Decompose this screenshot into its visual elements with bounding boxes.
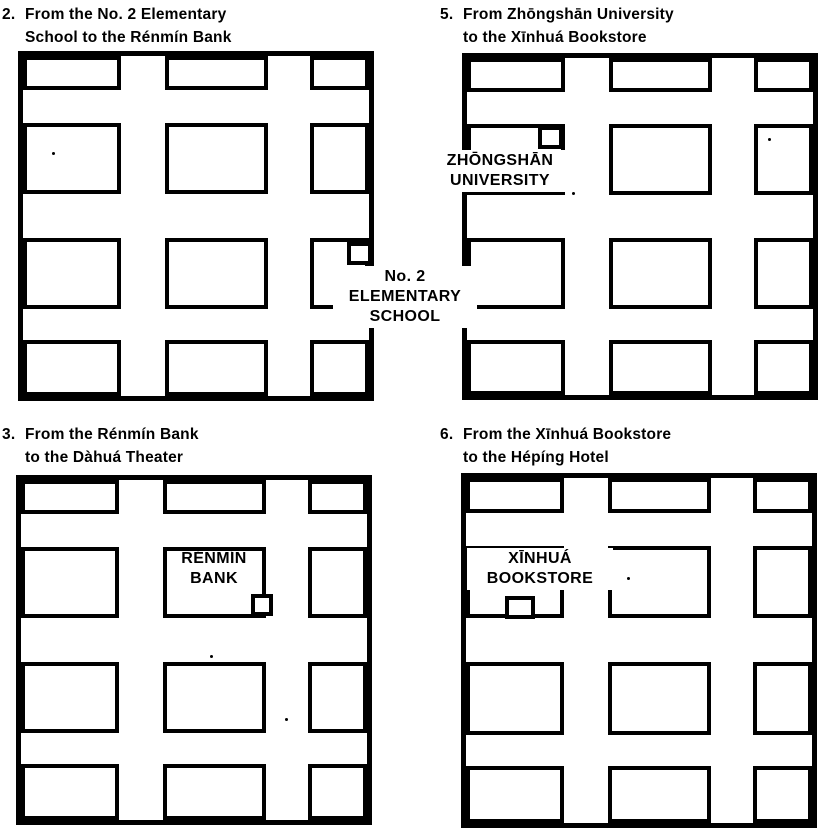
- city-block: [608, 478, 710, 513]
- city-block: [753, 662, 812, 734]
- city-map-exercise-5: ZHŌNGSHĀN UNIVERSITY: [462, 53, 818, 400]
- city-block: [754, 340, 813, 395]
- exercise-2-title-line2: School to the Rénmín Bank: [25, 26, 232, 49]
- scan-speck: [572, 192, 575, 195]
- city-block: [23, 238, 121, 309]
- exercise-6-title-line1: From the Xīnhuá Bookstore: [463, 423, 671, 446]
- city-block: [467, 340, 565, 395]
- place-label-xinhua-bookstore: XĪNHUÁ BOOKSTORE: [467, 548, 613, 590]
- city-block: [165, 340, 267, 396]
- place-label-line: BANK: [159, 569, 269, 589]
- city-block: [753, 546, 812, 618]
- scan-speck: [232, 475, 235, 478]
- place-label-renmin-bank: RÉNMÍN BANK: [157, 548, 271, 590]
- exercise-3-title-line2: to the Dàhuá Theater: [25, 446, 199, 469]
- location-marker-xinhua-bookstore: [505, 596, 535, 619]
- city-block: [608, 766, 710, 823]
- city-block: [310, 340, 369, 396]
- exercise-5-number: 5.: [440, 3, 463, 49]
- place-label-line: XĪNHUÁ: [469, 549, 611, 569]
- city-block: [754, 58, 813, 92]
- city-block: [165, 123, 267, 194]
- city-block: [609, 238, 711, 309]
- city-block: [753, 478, 812, 513]
- city-block: [23, 123, 121, 194]
- exercise-3-heading: 3. From the Rénmín Bank to the Dàhuá The…: [2, 423, 199, 469]
- place-label-line: BOOKSTORE: [469, 569, 611, 589]
- exercise-6-number: 6.: [440, 423, 463, 469]
- city-block: [609, 124, 711, 195]
- city-block: [23, 56, 121, 90]
- city-block: [163, 662, 265, 733]
- scan-speck: [627, 577, 630, 580]
- city-block: [21, 547, 119, 618]
- exercise-2-number: 2.: [2, 3, 25, 49]
- scan-speck: [210, 655, 213, 658]
- exercise-2-heading: 2. From the No. 2 Elementary School to t…: [2, 3, 232, 49]
- city-block: [308, 547, 367, 618]
- exercise-5-title-line1: From Zhōngshān University: [463, 3, 674, 26]
- exercise-3-title-line1: From the Rénmín Bank: [25, 423, 199, 446]
- scan-speck: [768, 138, 771, 141]
- exercise-3-number: 3.: [2, 423, 25, 469]
- place-label-zhongshan-university: ZHŌNGSHĀN UNIVERSITY: [423, 150, 577, 192]
- location-marker-elementary-school: [347, 242, 372, 265]
- city-block: [467, 58, 565, 92]
- city-block: [466, 766, 564, 823]
- city-block: [21, 480, 119, 514]
- city-block: [467, 238, 565, 309]
- location-marker-renmin-bank: [251, 594, 273, 616]
- city-block: [21, 764, 119, 820]
- city-block: [753, 766, 812, 823]
- city-block: [609, 58, 711, 92]
- city-block: [466, 662, 564, 734]
- city-block: [163, 764, 265, 820]
- place-label-line: ELEMENTARY: [335, 287, 475, 307]
- city-block: [466, 478, 564, 513]
- city-block: [310, 56, 369, 90]
- city-block: [754, 124, 813, 195]
- place-label-elementary-school: No. 2 ELEMENTARY SCHOOL: [333, 266, 477, 328]
- city-block: [754, 238, 813, 309]
- exercise-6-title-line2: to the Hépíng Hotel: [463, 446, 671, 469]
- city-map-exercise-2: No. 2 ELEMENTARY SCHOOL: [18, 51, 374, 401]
- textbook-page: 2. From the No. 2 Elementary School to t…: [0, 0, 820, 834]
- city-block: [608, 546, 710, 618]
- exercise-6-heading: 6. From the Xīnhuá Bookstore to the Hépí…: [440, 423, 671, 469]
- city-block: [165, 56, 267, 90]
- location-marker-zhongshan-university: [538, 126, 563, 149]
- exercise-5-heading: 5. From Zhōngshān University to the Xīnh…: [440, 3, 674, 49]
- scan-speck: [52, 152, 55, 155]
- place-label-line: SCHOOL: [335, 307, 475, 327]
- city-block: [308, 662, 367, 733]
- city-block: [308, 480, 367, 514]
- scan-speck: [285, 718, 288, 721]
- city-block: [165, 238, 267, 309]
- city-map-exercise-6: XĪNHUÁ BOOKSTORE: [461, 473, 817, 828]
- place-label-line: RÉNMÍN: [159, 549, 269, 569]
- exercise-2-title-line1: From the No. 2 Elementary: [25, 3, 232, 26]
- city-map-exercise-3: RÉNMÍN BANK: [16, 475, 372, 825]
- city-block: [608, 662, 710, 734]
- city-block: [609, 340, 711, 395]
- city-block: [310, 123, 369, 194]
- city-block: [308, 764, 367, 820]
- place-label-line: UNIVERSITY: [425, 171, 575, 191]
- city-block: [23, 340, 121, 396]
- place-label-line: No. 2: [335, 267, 475, 287]
- place-label-line: ZHŌNGSHĀN: [425, 151, 575, 171]
- exercise-5-title-line2: to the Xīnhuá Bookstore: [463, 26, 674, 49]
- city-block: [21, 662, 119, 733]
- city-block: [163, 480, 265, 514]
